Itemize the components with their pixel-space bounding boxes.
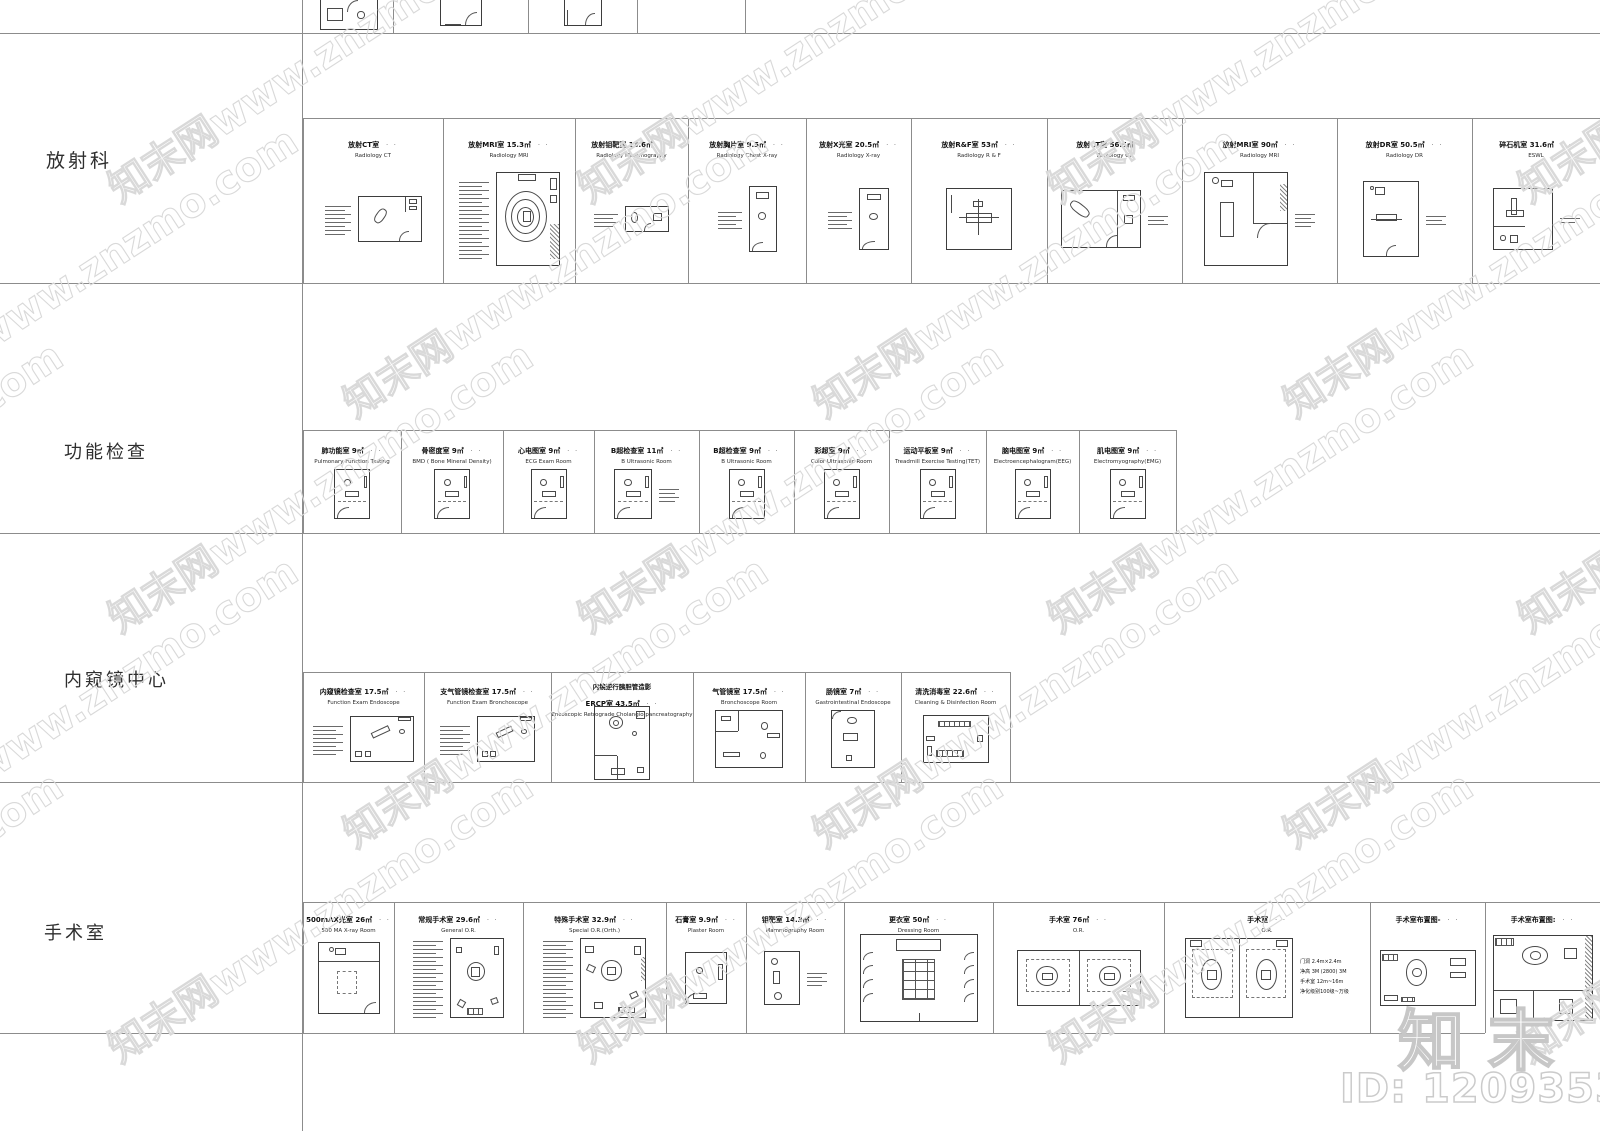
floor-plan — [580, 938, 646, 1018]
plan-shape — [594, 1002, 603, 1009]
cell-title: B超检查室 11㎡ — [611, 447, 664, 455]
cell-title-line: 500mAX光室 26㎡· · — [303, 909, 394, 925]
plan-shape — [550, 195, 557, 203]
plan-shape — [371, 725, 390, 738]
revision-mark-icon: · · — [660, 142, 672, 149]
equipment-legend — [440, 723, 470, 755]
plan-shape — [445, 491, 459, 497]
cell-title: 脑电图室 9㎡ — [1002, 447, 1044, 455]
plan-shape — [863, 952, 873, 961]
plan-shape — [456, 947, 463, 953]
cell-title: 心电图室 9㎡ — [518, 447, 560, 455]
legend-line — [325, 231, 345, 235]
plan-shape — [437, 507, 449, 518]
plan-shape — [399, 729, 405, 734]
cell-body — [305, 699, 422, 778]
floor-plan — [496, 172, 560, 266]
plan-shape — [1113, 507, 1125, 518]
cell-title: 手术室 — [1247, 916, 1268, 924]
cell-body — [988, 458, 1077, 529]
cropped-cell — [305, 0, 393, 33]
cell-title-line: 更衣室 50㎡· · — [844, 909, 993, 925]
cell-title: 运动平板室 9㎡ — [903, 447, 952, 455]
plan-shape — [523, 211, 531, 222]
plan-shape — [738, 479, 745, 486]
plan-shape — [624, 479, 631, 486]
floor-plan — [320, 0, 378, 30]
plan-shape — [629, 990, 639, 999]
plan-shape — [1024, 479, 1031, 486]
room-cell: 放射钼靶室 13.6㎡· · Radiology Mammography — [575, 118, 688, 283]
plan-shape — [1386, 245, 1397, 255]
room-cell: 支气管镜检查室 17.5㎡· · Function Exam Bronchosc… — [424, 672, 551, 782]
cell-titles: 放射钼靶室 13.6㎡· · Radiology Mammography — [575, 118, 688, 159]
plan-shape — [1207, 970, 1217, 980]
plan-shape — [490, 751, 496, 757]
cell-title: 放射CT室 — [348, 141, 379, 149]
revision-mark-icon: · · — [1096, 917, 1108, 924]
revision-mark-icon: · · — [725, 917, 737, 924]
revision-mark-icon: · · — [395, 689, 407, 696]
cell-titles: 放射X光室 20.5㎡· · Radiology X-ray — [806, 118, 911, 159]
room-cell: 骨密度室 9㎡· · BMD ( Bone Mineral Density) — [401, 430, 503, 533]
plan-shape — [345, 491, 359, 497]
revision-mark-icon: · · — [523, 689, 535, 696]
revision-mark-icon: · · — [371, 448, 383, 455]
plan-shape — [464, 476, 468, 488]
room-cell: 常规手术室 29.6㎡· · General O.R. — [394, 902, 523, 1033]
room-cell: 放射MRI室 90㎡· · Radiology MRI — [1182, 118, 1337, 283]
watermark-tile: 知末网www.znzmo.com — [1270, 540, 1600, 859]
plan-shape — [919, 1013, 920, 1021]
cell-title: 彩超室 9㎡ — [814, 447, 849, 455]
equipment-legend — [313, 723, 343, 755]
legend-line — [594, 223, 613, 227]
cell-body — [596, 458, 697, 529]
plan-shape — [585, 13, 594, 25]
cell-body — [913, 158, 1045, 279]
cell-title-line: 放射R&F室 53㎡· · — [911, 134, 1047, 150]
dimension-notes — [807, 970, 827, 986]
floor-plan — [920, 469, 956, 519]
equipment-legend — [459, 179, 489, 259]
plan-shape — [467, 1008, 484, 1015]
revision-mark-icon: · · — [1141, 142, 1153, 149]
cell-body — [695, 699, 803, 778]
plan-shape — [399, 231, 409, 241]
plan-shape — [560, 476, 564, 488]
plan-shape — [618, 501, 648, 502]
floor-plan — [350, 716, 414, 762]
cell-titles: 手术室布置图-· · — [1370, 902, 1485, 925]
room-cell: 放射MRI室 15.3㎡· · Radiology MRI — [443, 118, 575, 283]
plan-shape — [846, 755, 852, 762]
plan-shape — [973, 201, 983, 207]
equipment-legend — [325, 203, 351, 235]
legend-line — [1295, 223, 1311, 227]
floor-plan — [434, 469, 470, 519]
room-cell: 放射CT室· · Radiology CT — [303, 118, 443, 283]
room-cell: 内镜逆行胰胆管造影 ERCP室 43.5㎡· · Encoscopic Retr… — [551, 672, 693, 782]
grid-vline — [1176, 430, 1177, 533]
grid-hline — [0, 782, 1600, 783]
plan-shape — [632, 731, 637, 736]
cell-body — [995, 926, 1162, 1029]
plan-shape — [338, 501, 367, 502]
plan-shape — [534, 501, 563, 502]
cell-body — [305, 158, 441, 279]
cell-body — [796, 458, 887, 529]
plan-shape — [355, 751, 362, 757]
cell-title-line: 石膏室 9.9㎡· · — [666, 909, 746, 925]
cell-titles: 放射MRI室 15.3㎡· · Radiology MRI — [443, 118, 575, 159]
cell-title: 更衣室 50㎡ — [889, 916, 929, 924]
plan-shape — [1500, 235, 1505, 240]
plan-shape — [964, 965, 974, 974]
plan-shape — [761, 722, 768, 729]
floor-plan — [531, 469, 567, 519]
revision-mark-icon: · · — [1448, 917, 1460, 924]
dimension-notes — [1295, 211, 1315, 227]
legend-line — [659, 498, 675, 502]
plan-shape — [520, 717, 532, 721]
dimension-notes — [1148, 213, 1168, 225]
cell-title-line: B超检查室 11㎡· · — [594, 440, 699, 456]
plan-shape — [862, 241, 874, 249]
plan-shape — [853, 476, 857, 488]
room-cell: 放射CT室 56.5㎡· · Radiology CT — [1047, 118, 1182, 283]
cell-title: B超检查室 9㎡ — [713, 447, 761, 455]
plan-shape — [923, 501, 952, 502]
floor-plan — [564, 0, 602, 26]
room-cell: 手术室 76㎡· · O.R. — [993, 902, 1164, 1033]
room-cell: 气管镜室 17.5㎡· · Bronchoscope Room — [693, 672, 805, 782]
watermark-tile: 知末网www.znzmo.com — [1505, 325, 1600, 644]
plan-shape — [752, 242, 763, 250]
plan-shape — [718, 964, 723, 980]
cell-title: 肺功能室 9㎡ — [321, 447, 363, 455]
cell-title: 手术室布置图: — [1511, 916, 1556, 924]
plan-shape — [686, 993, 697, 1003]
plan-shape — [1253, 173, 1254, 224]
plan-shape — [1139, 476, 1143, 488]
revision-mark-icon: · · — [379, 917, 391, 924]
plan-shape — [843, 733, 858, 741]
plan-shape — [364, 476, 368, 488]
room-cell: 更衣室 50㎡· · Dressing Room — [844, 902, 993, 1033]
room-cell: 碎石机室 31.6㎡· · ESWL — [1472, 118, 1600, 283]
legend-line — [1560, 219, 1576, 223]
plan-shape — [567, 10, 568, 25]
spec-note-line: 净化级别100级~万级 — [1300, 989, 1349, 996]
plan-shape — [1506, 210, 1523, 217]
plan-shape — [863, 965, 873, 974]
cell-title: 气管镜室 17.5㎡ — [712, 688, 767, 696]
plan-shape — [756, 192, 770, 198]
plan-shape — [1370, 186, 1374, 190]
plan-shape — [1371, 219, 1402, 220]
floor-plan — [1061, 190, 1141, 248]
plan-shape — [490, 997, 498, 1005]
cad-sheet-canvas: 放射科 放射CT室· · Radiology CT 放射MRI室 15.3㎡· … — [0, 0, 1600, 1131]
room-cell: 手术室· · O.R. 门洞 2.4m×2.4m净高 3M (2800) 3M手… — [1164, 902, 1370, 1033]
plan-shape — [1220, 202, 1234, 237]
plan-shape — [595, 755, 617, 756]
plan-shape — [1018, 507, 1030, 518]
room-cell: 肌电图室 9㎡· · Electromyography(EMG) — [1079, 430, 1176, 533]
plan-shape — [365, 751, 372, 757]
cropped-cell — [528, 0, 637, 33]
plan-shape — [863, 979, 873, 988]
plan-shape — [936, 750, 964, 757]
plan-shape — [357, 11, 364, 19]
plan-shape — [1221, 180, 1233, 187]
plan-shape — [1042, 973, 1053, 979]
plan-shape — [445, 24, 461, 25]
plan-shape — [1026, 491, 1040, 497]
plan-shape — [827, 501, 856, 502]
room-cell: 脑电图室 9㎡· · Electroencephalogram(EEG) — [986, 430, 1079, 533]
revision-mark-icon: · · — [471, 448, 483, 455]
cell-titles: 放射胸片室 9.5㎡· · Radiology Chest X-ray — [688, 118, 806, 159]
cell-title-line: 运动平板室 9㎡· · — [889, 440, 986, 456]
cell-body — [1184, 158, 1335, 279]
plan-shape — [833, 479, 840, 486]
cell-title: 放射X光室 20.5㎡ — [819, 141, 879, 149]
floor-plan — [1363, 181, 1419, 257]
cell-body — [525, 926, 664, 1029]
floor-plan — [358, 196, 422, 242]
room-cell: 肠镜室 7㎡· · Gastrointestinal Endoscope — [805, 672, 901, 782]
plan-shape — [611, 768, 626, 775]
plan-shape — [1123, 195, 1135, 201]
cell-title-line: 支气管镜检查室 17.5㎡· · — [424, 681, 551, 697]
room-cell: 放射X光室 20.5㎡· · Radiology X-ray — [806, 118, 911, 283]
plan-shape — [607, 967, 617, 976]
plan-shape — [723, 752, 741, 757]
plan-shape — [364, 1002, 376, 1013]
revision-mark-icon: · · — [768, 448, 780, 455]
equipment-legend — [718, 209, 742, 229]
room-cell: 清洗消毒室 22.6㎡· · Cleaning & Disinfection R… — [901, 672, 1010, 782]
grid-hline — [0, 283, 1600, 284]
plan-shape — [1257, 223, 1270, 238]
plan-shape — [637, 767, 644, 773]
revision-mark-icon: · · — [857, 448, 869, 455]
plan-shape — [465, 12, 477, 25]
revision-mark-icon: · · — [936, 917, 948, 924]
cell-title-line: 骨密度室 9㎡· · — [401, 440, 503, 456]
plan-shape — [740, 491, 754, 497]
plan-shape — [1104, 973, 1115, 979]
cell-title-line: 手术室布置图:· · — [1485, 909, 1600, 925]
plan-shape — [758, 212, 766, 220]
revision-mark-icon: · · — [1285, 142, 1297, 149]
cell-title: 骨密度室 9㎡ — [421, 447, 463, 455]
plan-shape — [1375, 187, 1384, 194]
cell-title: 内窥镜检查室 17.5㎡ — [320, 688, 389, 696]
plan-shape — [444, 479, 451, 486]
legend-line — [440, 751, 463, 755]
floor-plan — [594, 706, 650, 780]
plan-shape — [1450, 972, 1466, 978]
floor-plan — [685, 952, 727, 1004]
plan-shape — [867, 194, 882, 200]
plan-shape — [641, 957, 645, 980]
plan-shape — [347, 0, 358, 12]
plan-shape — [773, 971, 780, 983]
plan-shape — [760, 752, 767, 759]
cell-title-line: 放射MRI室 15.3㎡· · — [443, 134, 575, 150]
cell-title-line: 手术室· · — [1164, 909, 1370, 925]
room-cell: 放射R&F室 53㎡· · Radiology R & F — [911, 118, 1047, 283]
cell-body — [305, 458, 399, 529]
room-cell: 内窥镜检查室 17.5㎡· · Function Exam Endoscope — [303, 672, 424, 782]
watermark-tile: 知末网www.znzmo.com — [0, 325, 72, 644]
room-cell: 肺功能室 9㎡· · Pulmonary Function Testing — [303, 430, 401, 533]
cell-title-line: 彩超室 9㎡· · — [794, 440, 889, 456]
cell-titles: 放射CT室· · Radiology CT — [303, 118, 443, 159]
cell-body — [1049, 158, 1180, 279]
cell-pretitle: 内镜逆行胰胆管造影 — [551, 681, 693, 691]
spec-note-line: 净高 3M (2800) 3M — [1300, 969, 1349, 976]
plan-shape — [929, 479, 936, 486]
cell-title: 放射钼靶室 13.6㎡ — [591, 141, 653, 149]
floor-plan — [614, 469, 652, 519]
revision-mark-icon: · · — [886, 142, 898, 149]
plan-shape — [617, 507, 630, 518]
revision-mark-icon: · · — [868, 689, 880, 696]
cell-title: 常规手术室 29.6㎡ — [418, 916, 480, 924]
cell-title-line: 放射MRI室 90㎡· · — [1182, 134, 1337, 150]
cell-body — [690, 158, 804, 279]
cell-title: 500mAX光室 26㎡ — [306, 916, 372, 924]
plan-shape — [832, 711, 841, 719]
plan-shape — [618, 1007, 635, 1013]
legend-line — [543, 1014, 566, 1018]
cell-title-line: 碎石机室 31.6㎡· · — [1472, 134, 1600, 150]
cell-title-line: 气管镜室 17.5㎡· · — [693, 681, 805, 697]
plan-shape — [409, 199, 417, 204]
room-cell: B超检查室 11㎡· · B Ultrasonic Room — [594, 430, 699, 533]
plan-shape — [1261, 970, 1271, 980]
dimension-notes — [1560, 215, 1580, 223]
equipment-legend — [594, 211, 618, 227]
plan-shape — [471, 967, 480, 976]
floor-plan — [477, 716, 535, 762]
plan-shape — [1564, 948, 1577, 959]
plan-shape — [327, 8, 344, 21]
revision-mark-icon: · · — [1275, 917, 1287, 924]
room-cell: 彩超室 9㎡· · Color Ultrasonic Room — [794, 430, 889, 533]
cell-body — [846, 926, 991, 1029]
revision-mark-icon: · · — [773, 142, 785, 149]
plan-shape — [977, 735, 983, 742]
floor-plan — [625, 206, 669, 232]
floor-plan — [318, 942, 380, 1014]
plan-shape — [1384, 995, 1398, 1001]
cell-title: 放射胸片室 9.5㎡ — [709, 141, 766, 149]
plan-shape — [337, 971, 357, 994]
spec-note-line: 门洞 2.4m×2.4m — [1300, 959, 1349, 966]
room-cell: 心电图室 9㎡· · ECG Exam Room — [503, 430, 594, 533]
plan-shape — [1106, 235, 1117, 246]
plan-shape — [696, 967, 703, 974]
plan-shape — [550, 178, 557, 190]
cell-titles: 放射CT室 56.5㎡· · Radiology CT — [1047, 118, 1182, 159]
plan-shape — [372, 207, 389, 225]
cell-title: 钼靶室 14.3㎡ — [762, 916, 810, 924]
dimension-notes — [1426, 213, 1446, 225]
plan-shape — [521, 729, 527, 734]
floor-plan — [440, 0, 482, 26]
cell-titles: 放射R&F室 53㎡· · Radiology R & F — [911, 118, 1047, 159]
room-cell: 石膏室 9.9㎡· · Plaster Room — [666, 902, 746, 1033]
legend-line — [807, 982, 823, 986]
plan-shape — [1079, 951, 1080, 1005]
cell-body — [1339, 158, 1470, 279]
plan-shape — [644, 223, 651, 231]
cell-titles: 放射DR室 50.5㎡· · Radiology DR — [1337, 118, 1472, 159]
cell-title-line: 放射DR室 50.5㎡· · — [1337, 134, 1472, 150]
room-cell: 放射胸片室 9.5㎡· · Radiology Chest X-ray — [688, 118, 806, 283]
revision-mark-icon: · · — [1432, 142, 1444, 149]
plan-shape — [951, 195, 952, 213]
cell-title-line: 常规手术室 29.6㎡· · — [394, 909, 523, 925]
cell-body — [808, 158, 909, 279]
plan-shape — [438, 501, 467, 502]
plan-shape — [1117, 191, 1118, 247]
revision-mark-icon: · · — [386, 142, 398, 149]
plan-shape — [923, 507, 935, 518]
plan-shape — [966, 213, 992, 223]
plan-shape — [1510, 235, 1519, 243]
plan-shape — [482, 751, 488, 757]
revision-mark-icon: · · — [1563, 917, 1575, 924]
plan-shape — [636, 711, 645, 719]
spec-notes: 门洞 2.4m×2.4m净高 3M (2800) 3M手术室 12m~16m净化… — [1300, 959, 1349, 996]
legend-line — [459, 255, 482, 259]
revision-mark-icon: · · — [487, 917, 499, 924]
revision-mark-icon: · · — [774, 689, 786, 696]
plan-shape — [896, 939, 940, 951]
floor-plan — [923, 715, 989, 763]
row-label-3: 手术室 — [44, 919, 107, 945]
plan-shape — [767, 733, 780, 738]
plan-shape — [1280, 184, 1287, 212]
cell-title-line: 放射钼靶室 13.6㎡· · — [575, 134, 688, 150]
cell-title-line: 放射胸片室 9.5㎡· · — [688, 134, 806, 150]
plan-shape — [1530, 951, 1541, 959]
cell-title-line: 手术室 76㎡· · — [993, 909, 1164, 925]
cell-body — [891, 458, 984, 529]
plan-shape — [771, 958, 778, 965]
plan-shape — [319, 961, 379, 962]
revision-mark-icon: · · — [623, 917, 635, 924]
plan-shape — [1121, 491, 1135, 497]
cell-body — [807, 699, 899, 778]
cell-body — [668, 926, 744, 1029]
floor-plan — [1204, 172, 1288, 266]
cell-title: 肠镜室 7㎡ — [826, 688, 861, 696]
cell-body — [553, 708, 691, 778]
cell-title: 手术室 76㎡ — [1049, 916, 1089, 924]
revision-mark-icon: · · — [567, 448, 579, 455]
room-cell: B超检查室 9㎡· · B Ultrasonic Room — [699, 430, 794, 533]
cell-body — [577, 158, 686, 279]
plan-shape — [1494, 226, 1526, 227]
row-label-1: 功能检查 — [64, 438, 148, 464]
